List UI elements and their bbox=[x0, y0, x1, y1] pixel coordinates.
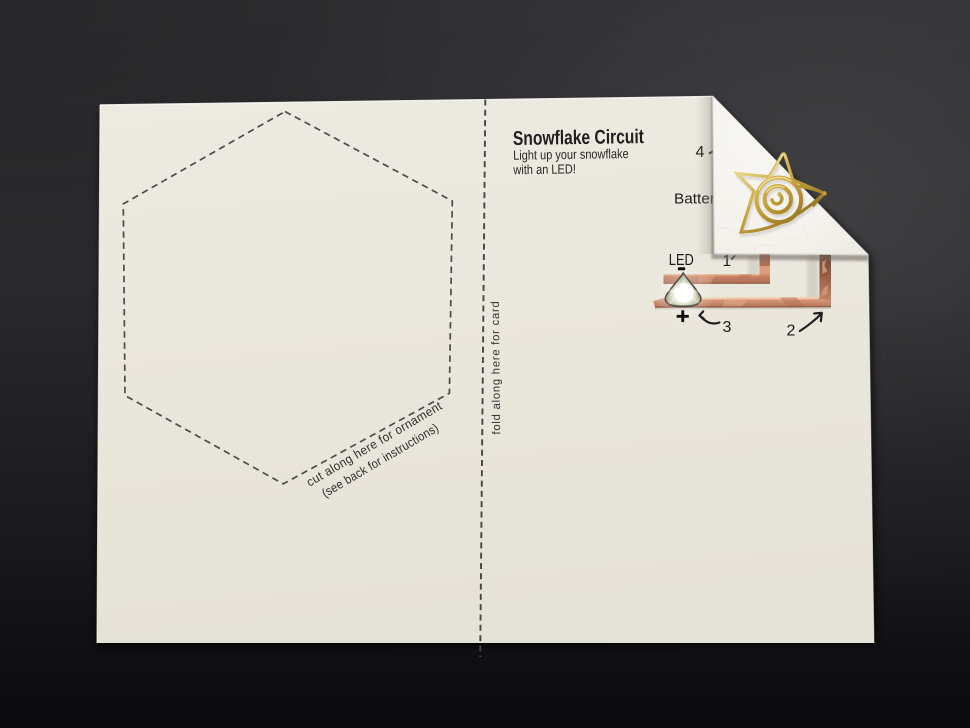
svg-text:LED: LED bbox=[669, 252, 694, 269]
svg-text:with an LED!: with an LED! bbox=[512, 161, 576, 177]
svg-text:2: 2 bbox=[787, 322, 796, 339]
svg-text:Light up your snowflake: Light up your snowflake bbox=[513, 146, 629, 163]
svg-text:3: 3 bbox=[723, 319, 732, 336]
svg-text:fold along here for card: fold along here for card bbox=[490, 300, 503, 434]
